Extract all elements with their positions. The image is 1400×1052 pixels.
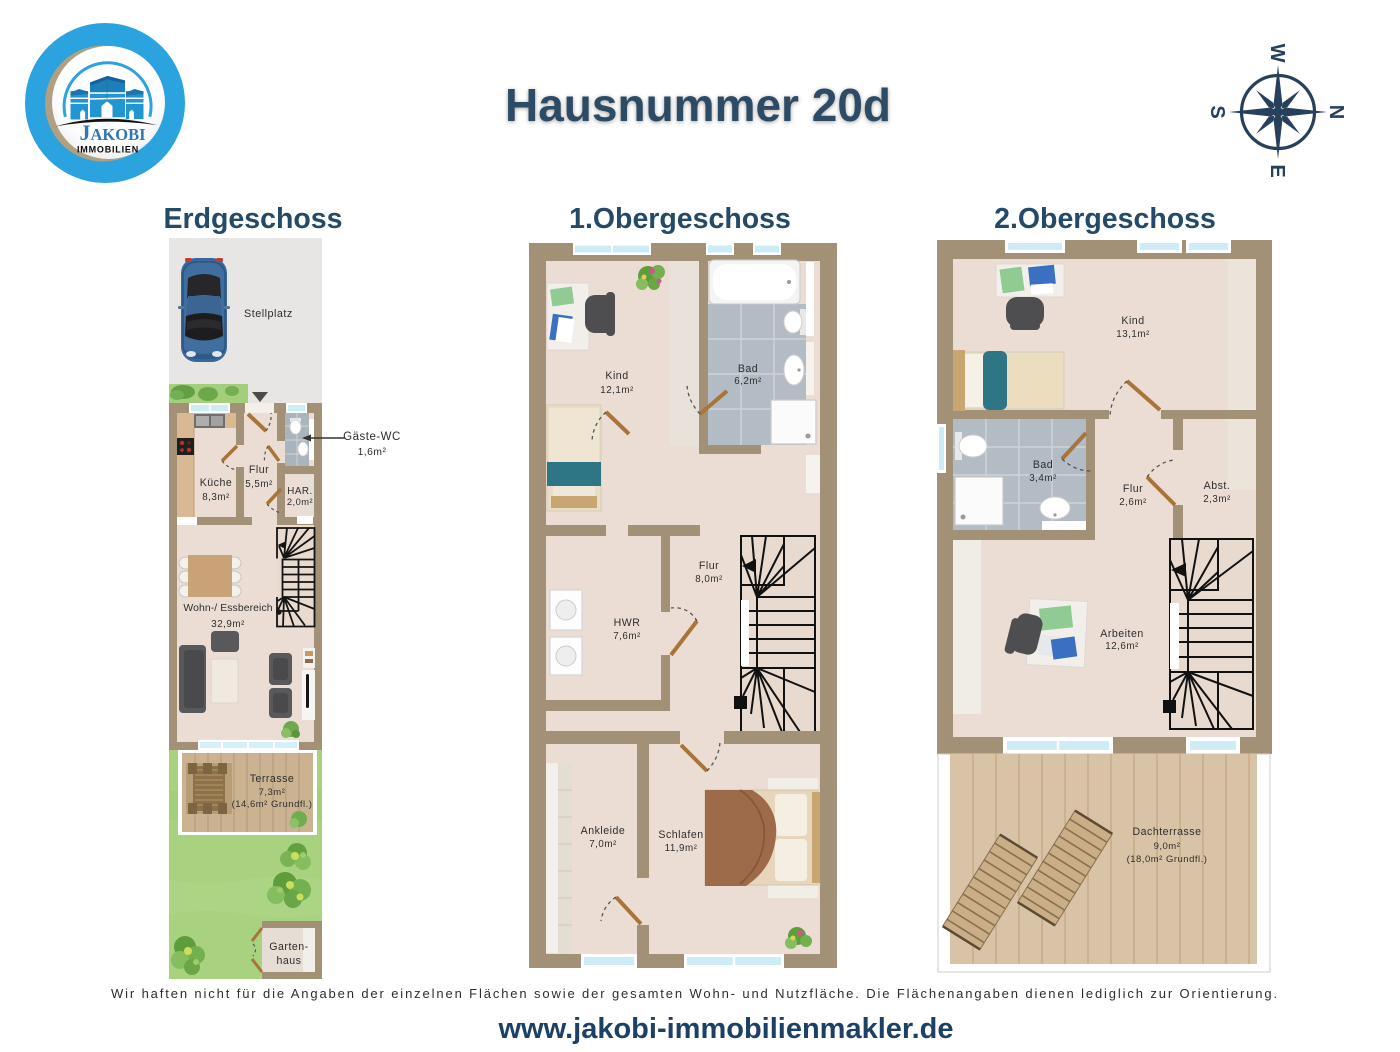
svg-text:Flur: Flur <box>699 560 719 572</box>
svg-text:Abst.: Abst. <box>1204 480 1231 492</box>
svg-text:Flur: Flur <box>249 464 269 476</box>
svg-text:Erdgeschoss: Erdgeschoss <box>164 203 343 235</box>
svg-text:1,6m²: 1,6m² <box>358 447 387 458</box>
svg-text:S: S <box>1206 105 1228 118</box>
svg-text:3,4m²: 3,4m² <box>1029 473 1057 484</box>
svg-text:IMMOBILIEN: IMMOBILIEN <box>77 145 139 155</box>
svg-text:7,3m²: 7,3m² <box>259 787 286 798</box>
svg-text:1.Obergeschoss: 1.Obergeschoss <box>569 203 791 235</box>
svg-text:Stellplatz: Stellplatz <box>244 308 293 320</box>
svg-text:Ankleide: Ankleide <box>581 825 626 837</box>
svg-text:8,3m²: 8,3m² <box>202 492 230 503</box>
svg-text:haus: haus <box>277 955 302 967</box>
svg-text:2,3m²: 2,3m² <box>1203 494 1231 505</box>
svg-text:Küche: Küche <box>200 477 233 489</box>
svg-text:(18,0m² Grundfl.): (18,0m² Grundfl.) <box>1127 854 1208 865</box>
svg-text:Hausnummer 20d: Hausnummer 20d <box>505 79 891 131</box>
svg-text:8,0m²: 8,0m² <box>695 574 723 585</box>
svg-text:Gäste-WC: Gäste-WC <box>343 431 401 443</box>
svg-text:Schlafen: Schlafen <box>658 829 703 841</box>
svg-text:Wohn-/ Essbereich: Wohn-/ Essbereich <box>183 603 272 614</box>
svg-text:7,0m²: 7,0m² <box>589 839 617 850</box>
svg-text:Kind: Kind <box>605 370 628 382</box>
svg-text:5,5m²: 5,5m² <box>245 479 273 490</box>
svg-text:32,9m²: 32,9m² <box>211 619 245 630</box>
svg-text:(14,6m² Grundfl.): (14,6m² Grundfl.) <box>232 799 313 810</box>
svg-text:Kind: Kind <box>1121 315 1144 327</box>
svg-text:HWR: HWR <box>614 617 641 629</box>
svg-text:N: N <box>1325 105 1347 119</box>
svg-text:2.Obergeschoss: 2.Obergeschoss <box>994 203 1216 235</box>
svg-text:W: W <box>1266 44 1288 63</box>
svg-text:2,0m²: 2,0m² <box>287 497 313 507</box>
svg-text:12,6m²: 12,6m² <box>1105 641 1139 652</box>
svg-text:11,9m²: 11,9m² <box>665 843 698 854</box>
svg-text:www.jakobi-immobilienmakler.de: www.jakobi-immobilienmakler.de <box>498 1013 954 1045</box>
svg-text:Flur: Flur <box>1123 483 1143 495</box>
svg-text:9,0m²: 9,0m² <box>1154 841 1181 852</box>
svg-text:Terrasse: Terrasse <box>250 773 295 785</box>
svg-text:Bad: Bad <box>1033 459 1053 471</box>
svg-text:Garten-: Garten- <box>269 941 308 953</box>
svg-text:Wir haften nicht für die Angab: Wir haften nicht für die Angaben der ein… <box>111 986 1279 1001</box>
svg-text:2,6m²: 2,6m² <box>1119 497 1147 508</box>
svg-text:HAR.: HAR. <box>287 486 312 497</box>
svg-text:Dachterrasse: Dachterrasse <box>1133 826 1202 838</box>
svg-text:E: E <box>1266 164 1288 177</box>
svg-text:6,2m²: 6,2m² <box>734 376 762 387</box>
svg-text:13,1m²: 13,1m² <box>1116 329 1150 340</box>
svg-text:7,6m²: 7,6m² <box>613 631 641 642</box>
svg-text:Arbeiten: Arbeiten <box>1100 628 1143 640</box>
svg-text:Bad: Bad <box>738 363 758 375</box>
svg-text:12,1m²: 12,1m² <box>600 385 634 396</box>
